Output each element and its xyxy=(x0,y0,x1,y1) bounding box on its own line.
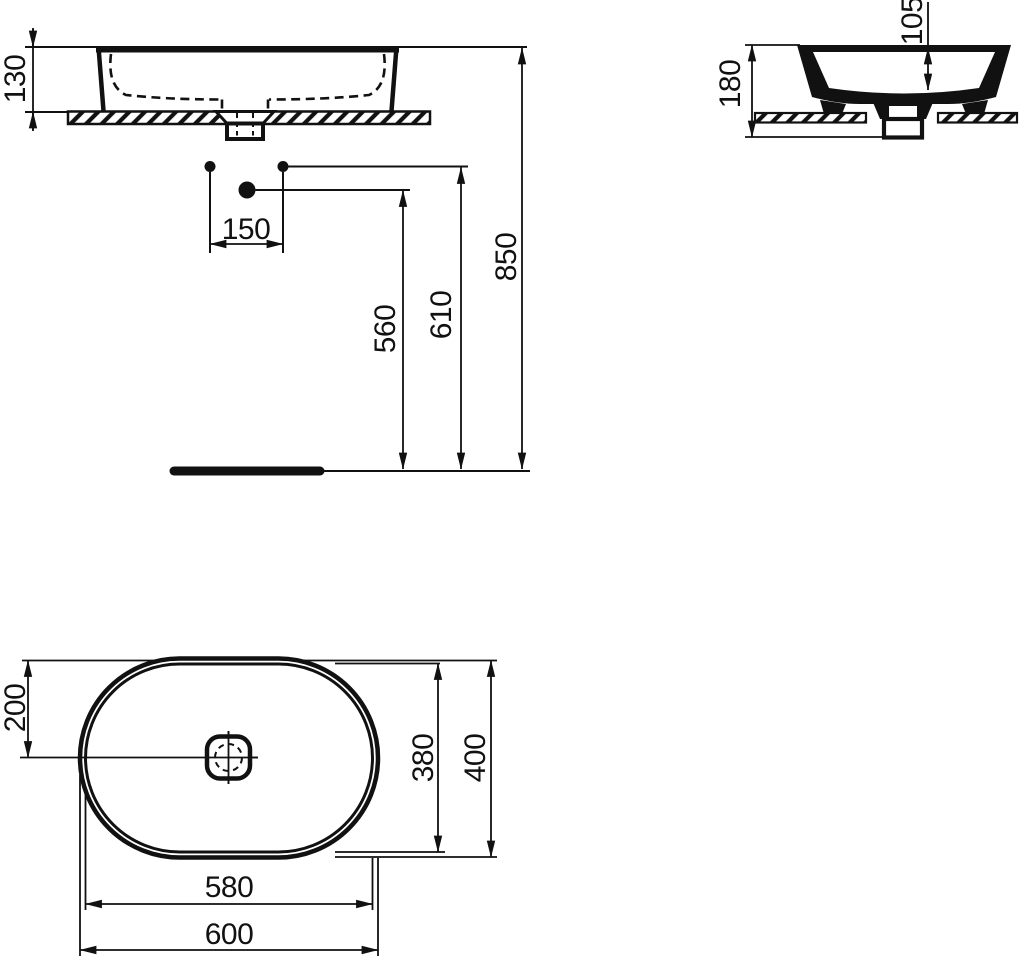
dim-130-label: 130 xyxy=(0,55,32,104)
supply-point-left xyxy=(205,161,216,172)
dim-850: 850 xyxy=(490,48,523,469)
dim-580-label: 580 xyxy=(205,871,254,904)
drawing-svg: 130 xyxy=(0,0,1024,958)
bowl-dashed-left xyxy=(110,54,221,100)
supply-point-right xyxy=(278,161,289,172)
dim-400: 400 xyxy=(459,661,492,858)
dim-200: 200 xyxy=(0,661,32,758)
dim-600-label: 600 xyxy=(205,918,254,951)
waste-outlet-side xyxy=(884,119,922,138)
basin-left-wall xyxy=(99,47,104,111)
dim-150: 150 xyxy=(210,213,283,246)
front-view: 130 xyxy=(0,28,527,139)
dim-600: 600 xyxy=(80,918,378,951)
dim-560: 560 xyxy=(369,191,403,470)
countertop-side-left xyxy=(755,113,866,123)
bowl-dashed-right xyxy=(269,54,385,100)
dim-105-label: 105 xyxy=(896,0,929,45)
dim-560-label: 560 xyxy=(369,305,402,354)
basin-section-bowl xyxy=(813,52,995,94)
dim-580: 580 xyxy=(86,871,373,904)
washbasin-technical-drawing: 130 xyxy=(0,0,1024,958)
plan-view: 200 380 400 580 600 xyxy=(0,659,497,957)
dim-200-label: 200 xyxy=(0,684,32,733)
basin-right-wall xyxy=(392,47,397,111)
dim-180: 180 xyxy=(714,45,752,137)
basin-front-outline xyxy=(96,47,399,111)
dim-400-label: 400 xyxy=(459,734,492,783)
dim-610-label: 610 xyxy=(425,291,458,340)
dim-380: 380 xyxy=(407,664,440,853)
waste-spigot xyxy=(227,124,263,140)
dim-610: 610 xyxy=(425,168,461,470)
side-view: 180 105 xyxy=(714,0,1017,138)
dim-380-label: 380 xyxy=(407,734,440,783)
dim-850-label: 850 xyxy=(490,233,523,282)
waste-point xyxy=(239,182,256,199)
dim-180-label: 180 xyxy=(714,60,747,109)
basin-hidden-contour xyxy=(110,54,384,111)
countertop-side-right xyxy=(938,113,1017,123)
dim-150-label: 150 xyxy=(222,213,271,246)
dim-130: 130 xyxy=(0,28,33,131)
